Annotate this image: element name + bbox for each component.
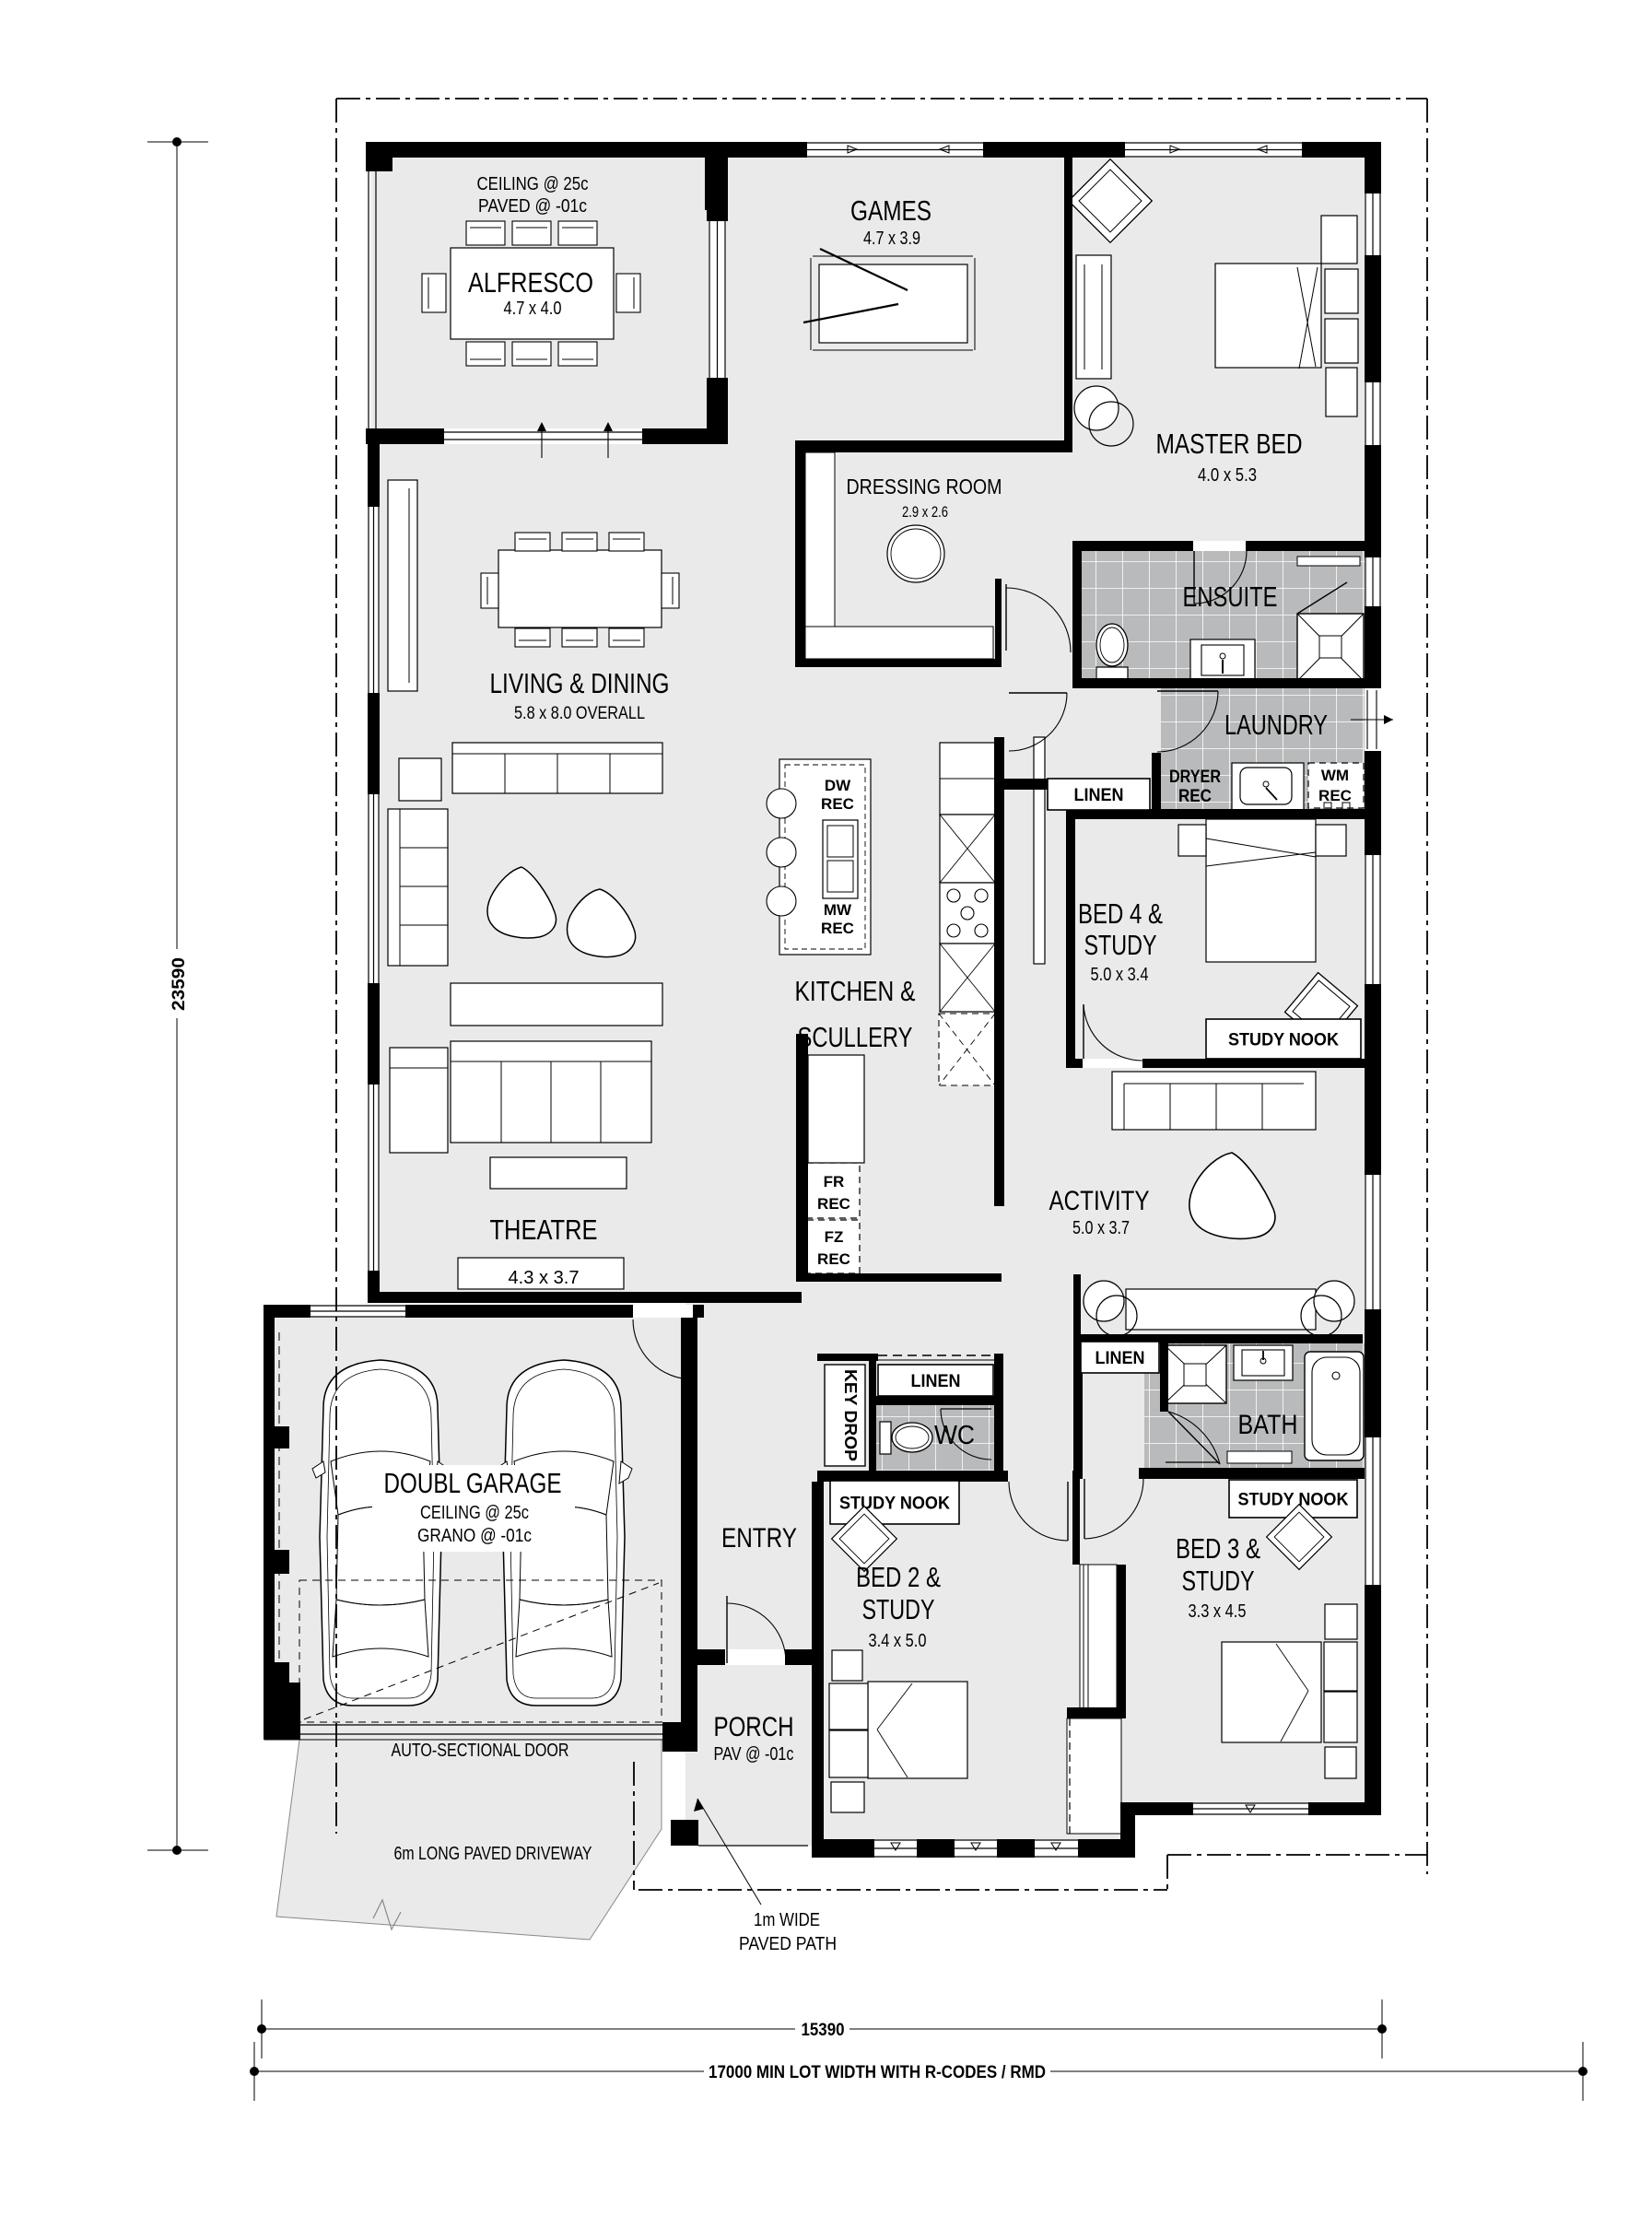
- svg-text:CEILING @ 25c: CEILING @ 25c: [477, 174, 589, 194]
- svg-text:LINEN: LINEN: [1095, 1349, 1145, 1368]
- svg-text:ALFRESCO: ALFRESCO: [468, 266, 593, 299]
- svg-text:WC: WC: [934, 1421, 975, 1450]
- svg-text:5.0 x 3.4: 5.0 x 3.4: [1091, 965, 1149, 985]
- svg-text:6m LONG PAVED DRIVEWAY: 6m LONG PAVED DRIVEWAY: [394, 1844, 592, 1864]
- svg-text:STUDY: STUDY: [1182, 1565, 1255, 1597]
- svg-text:ENTRY: ENTRY: [721, 1523, 797, 1554]
- svg-text:4.3 x 3.7: 4.3 x 3.7: [509, 1268, 580, 1288]
- svg-text:LAUNDRY: LAUNDRY: [1224, 709, 1328, 741]
- svg-text:SCULLERY: SCULLERY: [798, 1021, 913, 1053]
- svg-text:BED 3 &: BED 3 &: [1176, 1532, 1260, 1565]
- svg-text:REC: REC: [817, 1250, 850, 1268]
- svg-text:THEATRE: THEATRE: [490, 1214, 598, 1246]
- svg-text:KEY DROP: KEY DROP: [841, 1369, 860, 1461]
- svg-text:DOUBL GARAGE: DOUBL GARAGE: [384, 1467, 562, 1499]
- svg-text:LINEN: LINEN: [911, 1372, 961, 1391]
- svg-text:PAVED PATH: PAVED PATH: [739, 1934, 837, 1954]
- svg-text:STUDY NOOK: STUDY NOOK: [839, 1494, 950, 1513]
- svg-text:PAVED @ -01c: PAVED @ -01c: [478, 196, 587, 217]
- svg-text:23590: 23590: [170, 957, 189, 1011]
- svg-text:STUDY NOOK: STUDY NOOK: [1238, 1490, 1349, 1509]
- svg-text:WM: WM: [1321, 767, 1349, 784]
- svg-text:REC: REC: [821, 920, 854, 937]
- svg-text:AUTO-SECTIONAL DOOR: AUTO-SECTIONAL DOOR: [392, 1741, 569, 1761]
- svg-text:KITCHEN &: KITCHEN &: [795, 975, 916, 1007]
- svg-text:STUDY: STUDY: [1084, 929, 1157, 961]
- svg-text:4.7 x 3.9: 4.7 x 3.9: [863, 229, 920, 249]
- svg-text:ENSUITE: ENSUITE: [1183, 580, 1278, 613]
- svg-text:4.0 x 5.3: 4.0 x 5.3: [1198, 465, 1257, 486]
- svg-text:MW: MW: [824, 901, 852, 919]
- svg-text:ACTIVITY: ACTIVITY: [1049, 1186, 1150, 1216]
- svg-text:MASTER BED: MASTER BED: [1156, 428, 1303, 460]
- svg-text:BED 2 &: BED 2 &: [856, 1561, 941, 1593]
- svg-text:3.3 x 4.5: 3.3 x 4.5: [1189, 1601, 1247, 1622]
- svg-text:17000 MIN LOT WIDTH WITH R-COD: 17000 MIN LOT WIDTH WITH R-CODES / RMD: [709, 2063, 1046, 2082]
- svg-text:DRESSING ROOM: DRESSING ROOM: [847, 475, 1002, 498]
- svg-text:DW: DW: [825, 777, 851, 794]
- svg-text:REC: REC: [1178, 787, 1212, 806]
- svg-text:1m WIDE: 1m WIDE: [754, 1910, 820, 1930]
- svg-text:STUDY NOOK: STUDY NOOK: [1228, 1030, 1339, 1050]
- svg-text:5.0 x 3.7: 5.0 x 3.7: [1072, 1218, 1130, 1238]
- svg-text:GAMES: GAMES: [850, 194, 931, 227]
- svg-text:PAV @ -01c: PAV @ -01c: [714, 1744, 794, 1765]
- svg-text:BED 4 &: BED 4 &: [1078, 897, 1163, 930]
- svg-text:FZ: FZ: [825, 1228, 844, 1246]
- svg-text:DRYER: DRYER: [1169, 768, 1221, 787]
- svg-text:GRANO @ -01c: GRANO @ -01c: [417, 1526, 532, 1546]
- svg-text:REC: REC: [817, 1195, 850, 1213]
- svg-text:2.9 x 2.6: 2.9 x 2.6: [902, 503, 948, 521]
- svg-text:LINEN: LINEN: [1074, 786, 1124, 805]
- svg-text:4.7 x 4.0: 4.7 x 4.0: [504, 299, 562, 319]
- svg-text:3.4 x 5.0: 3.4 x 5.0: [869, 1631, 927, 1651]
- svg-text:REC: REC: [1318, 787, 1352, 804]
- svg-text:LIVING & DINING: LIVING & DINING: [490, 667, 670, 699]
- svg-text:FR: FR: [824, 1173, 845, 1190]
- svg-text:15390: 15390: [802, 2021, 845, 2040]
- svg-text:STUDY: STUDY: [862, 1593, 935, 1625]
- svg-text:REC: REC: [821, 795, 854, 813]
- svg-text:PORCH: PORCH: [714, 1712, 794, 1742]
- svg-text:BATH: BATH: [1238, 1410, 1298, 1440]
- svg-text:CEILING @ 25c: CEILING @ 25c: [420, 1503, 529, 1523]
- svg-text:5.8 x 8.0 OVERALL: 5.8 x 8.0 OVERALL: [514, 704, 645, 723]
